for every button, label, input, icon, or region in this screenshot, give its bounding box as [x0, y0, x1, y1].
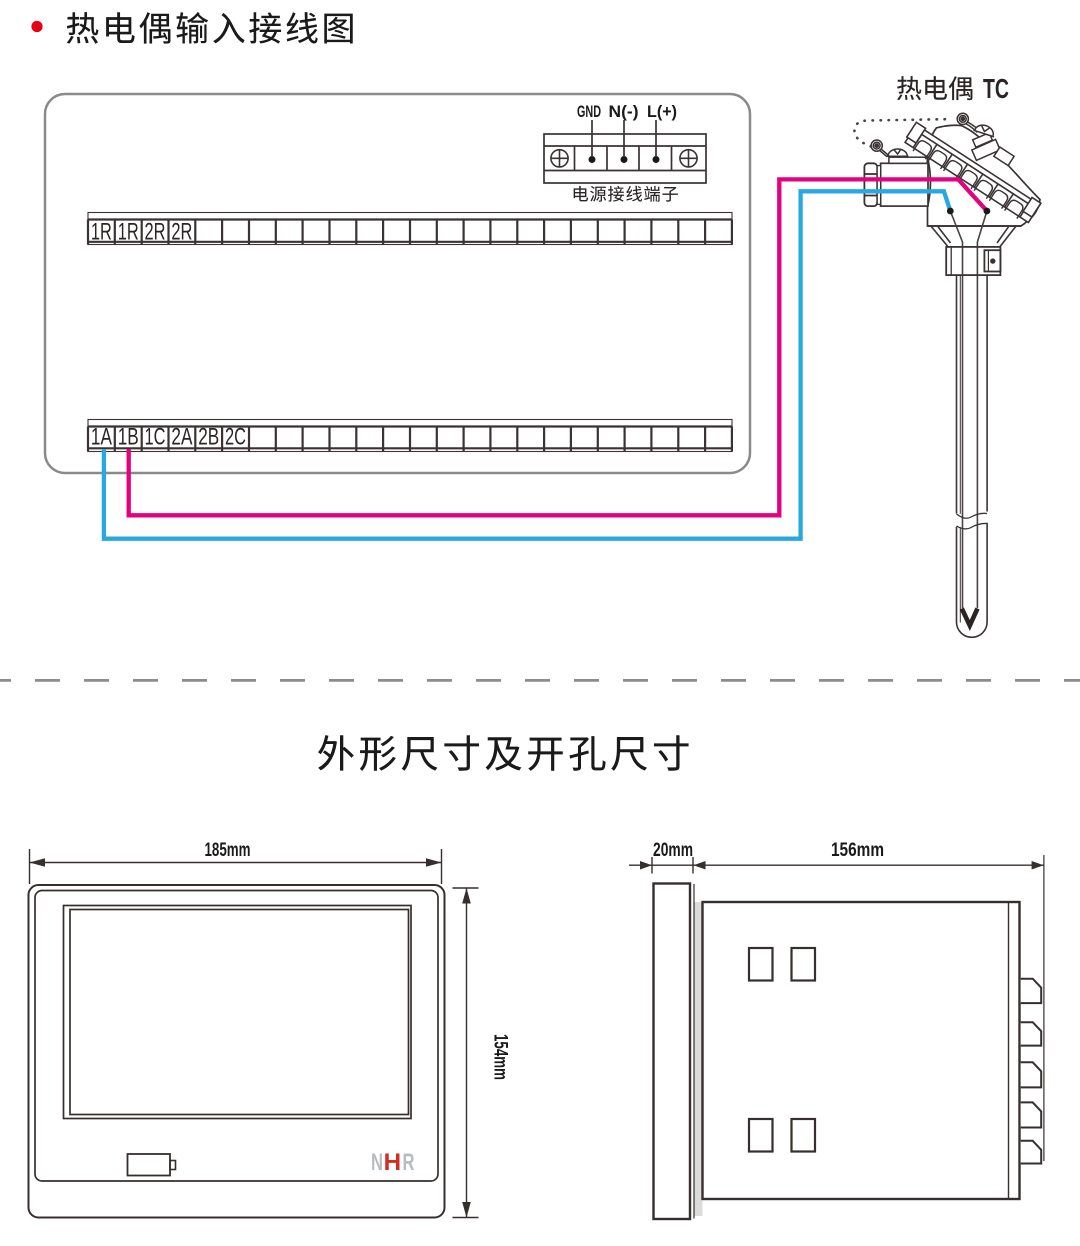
svg-text:L(+): L(+)	[647, 103, 677, 121]
svg-text:N: N	[371, 1149, 383, 1176]
svg-text:H: H	[384, 1149, 402, 1176]
svg-text:2C: 2C	[225, 424, 246, 451]
svg-text:1R: 1R	[91, 219, 112, 246]
svg-text:185mm: 185mm	[205, 840, 251, 861]
svg-text:1R: 1R	[118, 219, 139, 246]
svg-text:R: R	[403, 1149, 415, 1176]
svg-text:156mm: 156mm	[831, 840, 884, 861]
svg-text:GND: GND	[577, 103, 601, 121]
svg-text:2R: 2R	[171, 219, 192, 246]
svg-text:2R: 2R	[145, 219, 166, 246]
svg-text:1B: 1B	[118, 424, 139, 451]
svg-text:154mm: 154mm	[490, 1034, 511, 1080]
svg-text:1A: 1A	[91, 424, 112, 451]
svg-text:2A: 2A	[171, 424, 192, 451]
svg-text:N(-): N(-)	[609, 103, 639, 121]
svg-text:1C: 1C	[145, 424, 166, 451]
svg-text:2B: 2B	[198, 424, 219, 451]
svg-text:TC: TC	[983, 73, 1009, 104]
svg-text:20mm: 20mm	[653, 840, 693, 861]
